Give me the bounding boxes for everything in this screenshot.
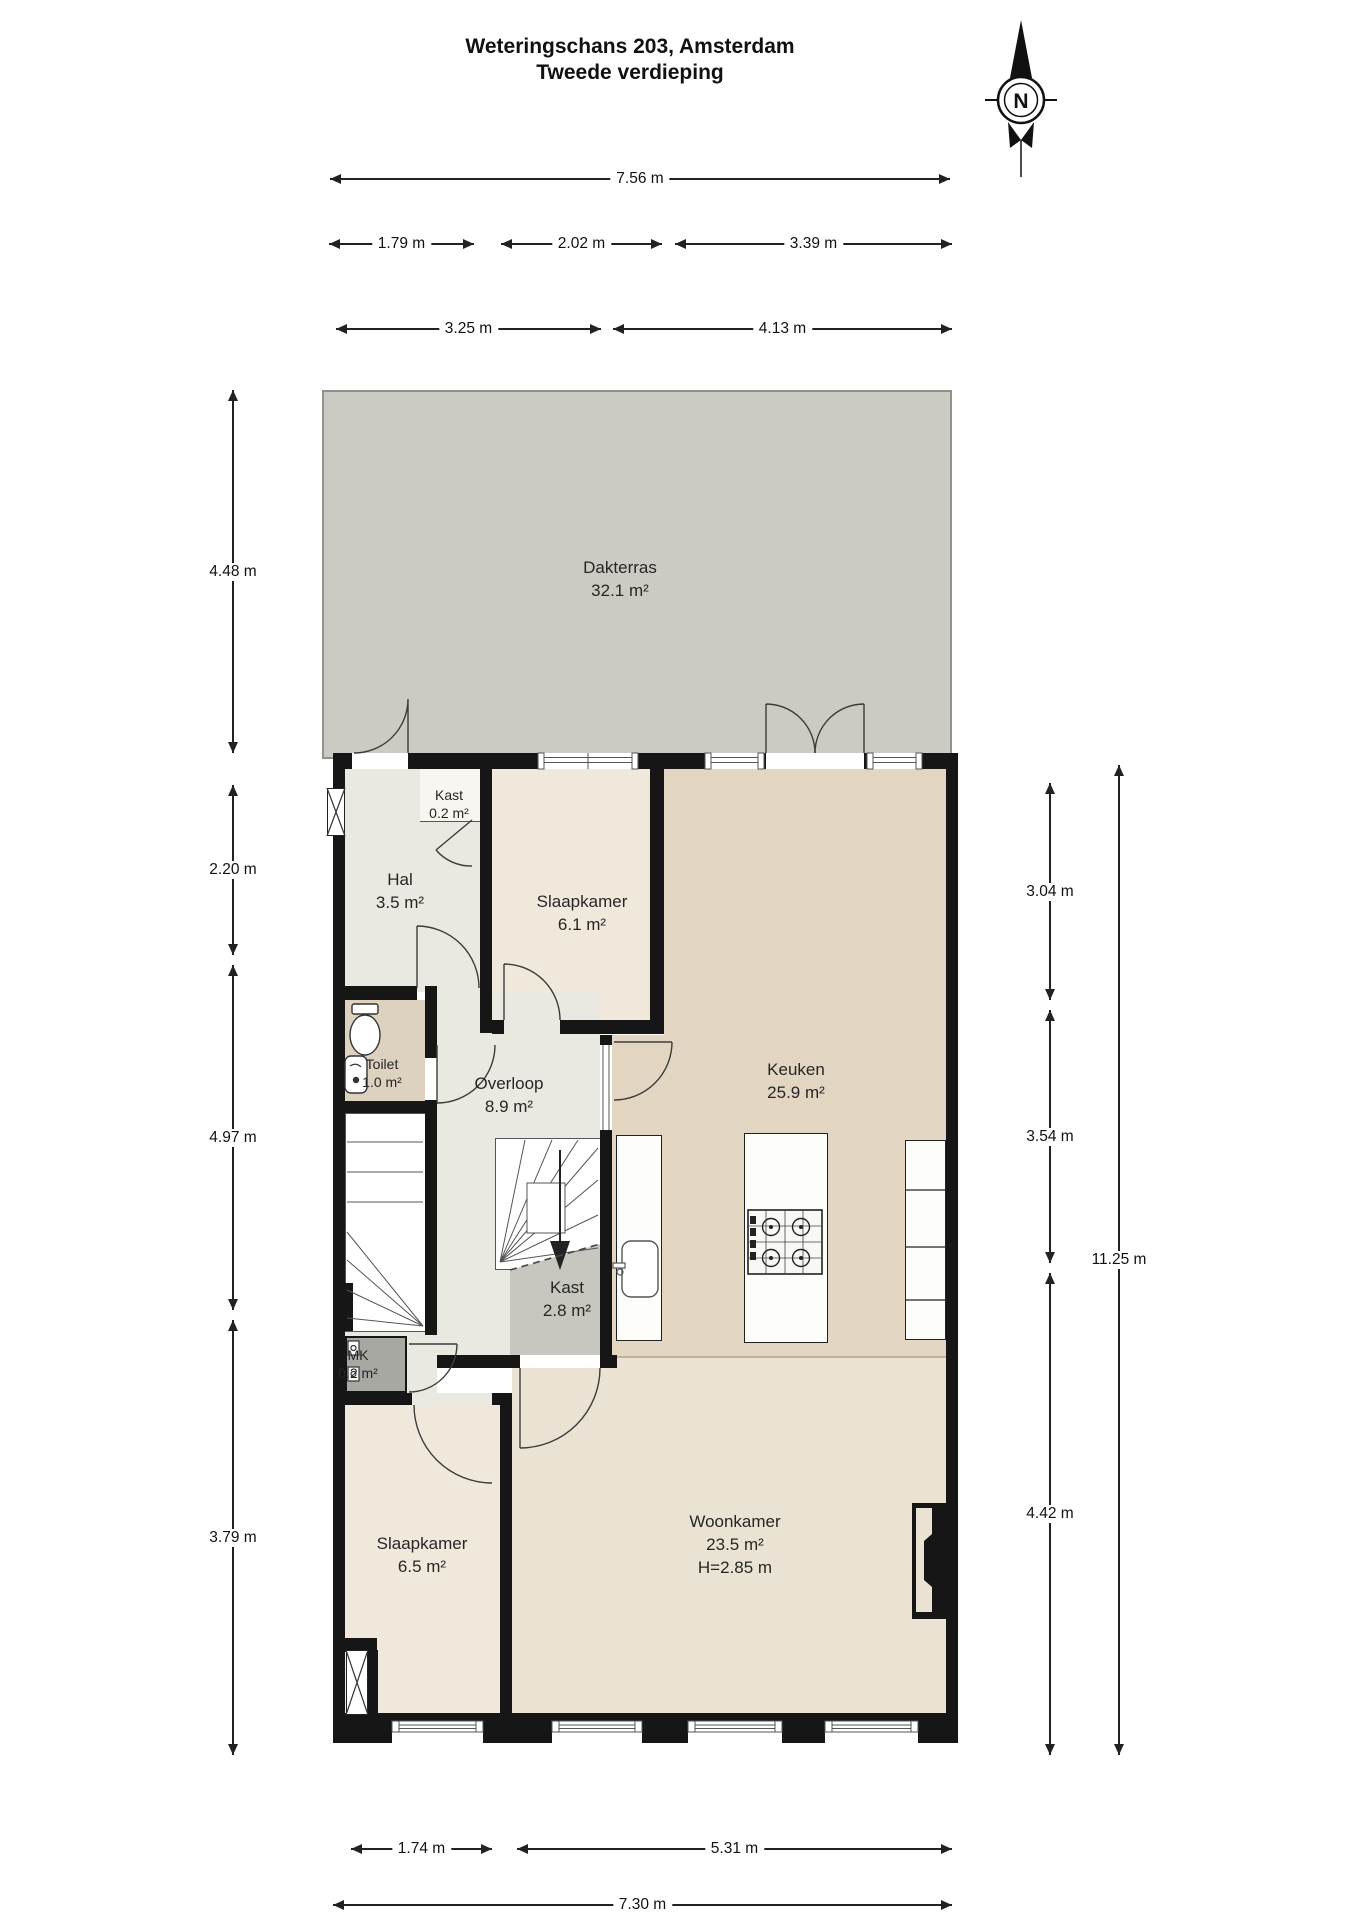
label-kast-boven: Kast 0.2 m²	[399, 786, 499, 822]
wall-bottom-pier	[782, 1713, 825, 1743]
room-area: 0.2 m²	[399, 804, 499, 822]
wall-bottom-pier	[642, 1713, 688, 1743]
room-area: 25.9 m²	[716, 1081, 876, 1104]
dim-top-756: 7.56 m	[330, 171, 950, 187]
dim-label: 1.74 m	[392, 1840, 451, 1858]
room-ceiling-height: H=2.85 m	[655, 1556, 815, 1579]
label-kast-midden: Kast 2.8 m²	[507, 1276, 627, 1322]
label-toilet: Toilet 1.0 m²	[332, 1055, 432, 1091]
dim-right-354: 3.54 m	[1042, 1010, 1058, 1263]
dim-label: 3.04 m	[1020, 883, 1079, 901]
label-woonkamer: Woonkamer 23.5 m² H=2.85 m	[655, 1510, 815, 1579]
room-area: 1.0 m²	[332, 1073, 432, 1091]
label-slaapkamer2: Slaapkamer 6.5 m²	[342, 1532, 502, 1578]
room-area: 23.5 m²	[655, 1533, 815, 1556]
room-area: 0.2 m²	[327, 1364, 389, 1382]
label-slaapkamer1: Slaapkamer 6.1 m²	[502, 890, 662, 936]
door-opening-hal-dakterras	[352, 753, 408, 769]
floorplan-page: Weteringschans 203, Amsterdam Tweede ver…	[0, 0, 1358, 1920]
dim-label: 4.97 m	[203, 1129, 262, 1147]
wall-overloop-woonkamer-a	[437, 1355, 520, 1368]
page-title: Weteringschans 203, Amsterdam Tweede ver…	[230, 34, 1030, 86]
slaapkamer2-door-opening	[412, 1393, 492, 1405]
dim-top-413: 4.13 m	[613, 321, 952, 337]
room-name: Keuken	[716, 1058, 876, 1081]
glass-partition-overloop-keuken	[600, 1045, 612, 1130]
wall-slaapkamer1-south-a	[492, 1020, 504, 1034]
kitchen-counter-right	[905, 1140, 946, 1340]
dim-label: 4.42 m	[1020, 1505, 1079, 1523]
label-dakterras: Dakterras 32.1 m²	[520, 556, 720, 602]
dim-label: 3.79 m	[203, 1529, 262, 1547]
room-name: Woonkamer	[655, 1510, 815, 1533]
dim-bottom-174: 1.74 m	[351, 1841, 492, 1857]
label-hal: Hal 3.5 m²	[340, 868, 460, 914]
wall-overloop-woonkamer-b	[600, 1355, 617, 1368]
dim-left-497: 4.97 m	[225, 965, 241, 1310]
wall-bottom-pier	[483, 1713, 552, 1743]
room-area: 32.1 m²	[520, 579, 720, 602]
dim-label: 2.20 m	[203, 861, 262, 879]
window-keuken-north-west	[705, 753, 764, 769]
dim-top-179: 1.79 m	[329, 236, 474, 252]
dim-left-220: 2.20 m	[225, 785, 241, 955]
wall-top	[333, 753, 958, 769]
room-area: 3.5 m²	[340, 891, 460, 914]
dim-label: 4.48 m	[203, 563, 262, 581]
dim-label: 7.56 m	[610, 170, 669, 188]
kitchen-island	[744, 1133, 828, 1343]
room-area: 8.9 m²	[429, 1095, 589, 1118]
wall-partition-stub	[600, 1035, 612, 1045]
dim-right-1125: 11.25 m	[1111, 765, 1127, 1755]
room-name: Kast	[507, 1276, 627, 1299]
room-name: Toilet	[332, 1055, 432, 1073]
compass-north-label: N	[1013, 90, 1028, 113]
door-opening-keuken-dakterras	[766, 753, 864, 769]
wall-toilet-top	[333, 986, 417, 1000]
title-address: Weteringschans 203, Amsterdam	[230, 34, 1030, 60]
wall-right	[946, 753, 958, 1743]
dim-top-325: 3.25 m	[336, 321, 601, 337]
dim-label: 5.31 m	[705, 1840, 764, 1858]
dim-right-304: 3.04 m	[1042, 783, 1058, 1000]
wall-stair-pier	[345, 1283, 353, 1331]
room-name: Slaapkamer	[502, 890, 662, 913]
title-floor: Tweede verdieping	[230, 60, 1030, 86]
dim-label: 3.25 m	[439, 320, 498, 338]
dim-label: 7.30 m	[613, 1896, 672, 1914]
dim-right-442: 4.42 m	[1042, 1273, 1058, 1755]
room-name: Slaapkamer	[342, 1532, 502, 1555]
label-mk: MK 0.2 m²	[327, 1346, 389, 1382]
room-area: 6.5 m²	[342, 1555, 502, 1578]
room-name: Overloop	[429, 1072, 589, 1095]
room-area: 6.1 m²	[502, 913, 662, 936]
room-name: Dakterras	[520, 556, 720, 579]
label-keuken: Keuken 25.9 m²	[716, 1058, 876, 1104]
label-overloop: Overloop 8.9 m²	[429, 1072, 589, 1118]
dim-label: 3.54 m	[1020, 1128, 1079, 1146]
wall-bottom-pier	[918, 1713, 958, 1743]
wall-toilet-bottom	[333, 1101, 437, 1113]
room-name: Kast	[399, 786, 499, 804]
room-name: MK	[327, 1346, 389, 1364]
dim-label: 11.25 m	[1086, 1251, 1153, 1269]
dim-bottom-531: 5.31 m	[517, 1841, 952, 1857]
dim-label: 1.79 m	[372, 235, 431, 253]
dim-bottom-730: 7.30 m	[333, 1897, 952, 1913]
room-area: 2.8 m²	[507, 1299, 627, 1322]
wall-toilet-east-lower	[425, 1100, 437, 1335]
dim-label: 4.13 m	[753, 320, 812, 338]
dim-left-448: 4.48 m	[225, 390, 241, 753]
wall-bottom-pier	[333, 1713, 392, 1743]
wall-slaapkamer2-top-a	[333, 1393, 412, 1405]
vent-shaft-hal	[327, 788, 345, 836]
room-keuken-floor-north	[664, 769, 946, 1035]
room-name: Hal	[340, 868, 460, 891]
dim-label: 3.39 m	[784, 235, 843, 253]
dim-top-339: 3.39 m	[675, 236, 952, 252]
wall-slaapkamer1-south-b	[560, 1020, 664, 1034]
wall-shaft-east	[368, 1650, 378, 1715]
window-keuken-north-east	[867, 753, 922, 769]
wall-toilet-east-upper	[425, 986, 437, 1058]
vent-shaft-slaapkamer2	[346, 1650, 368, 1715]
dim-left-379: 3.79 m	[225, 1320, 241, 1755]
door-opening-woonkamer	[520, 1355, 600, 1368]
dim-top-202: 2.02 m	[501, 236, 662, 252]
wall-slaapkamer2-top-b	[492, 1393, 512, 1405]
stairs-west-flight	[345, 1113, 427, 1332]
window-slaapkamer1-north	[538, 753, 638, 769]
dim-label: 2.02 m	[552, 235, 611, 253]
